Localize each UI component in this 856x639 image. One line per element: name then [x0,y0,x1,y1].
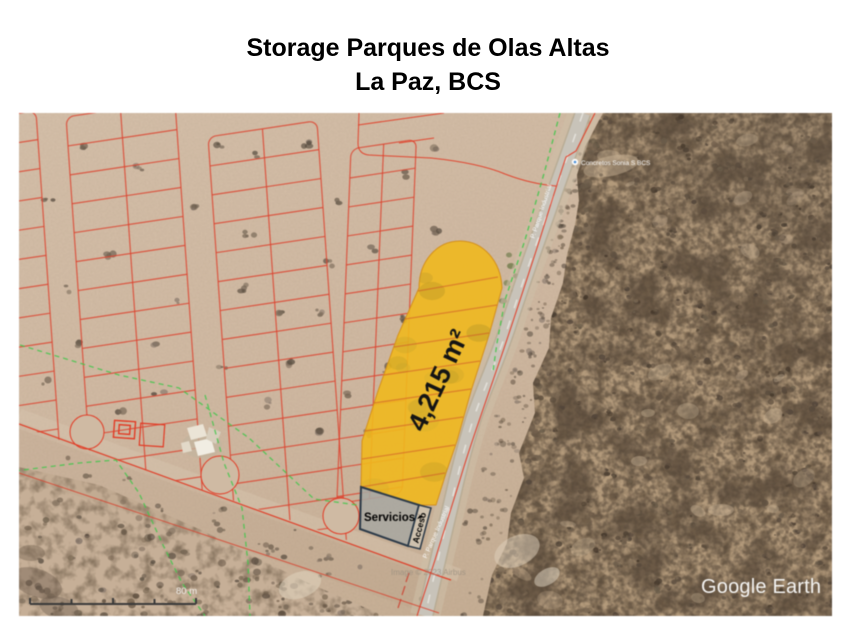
svg-text:Concretos Sonia S BCS: Concretos Sonia S BCS [581,160,651,167]
svg-text:Servicios: Servicios [364,512,415,524]
svg-text:80 m: 80 m [176,586,197,597]
svg-text:Google Earth: Google Earth [701,576,821,598]
svg-text:Image © 2023 Airbus: Image © 2023 Airbus [391,568,466,577]
